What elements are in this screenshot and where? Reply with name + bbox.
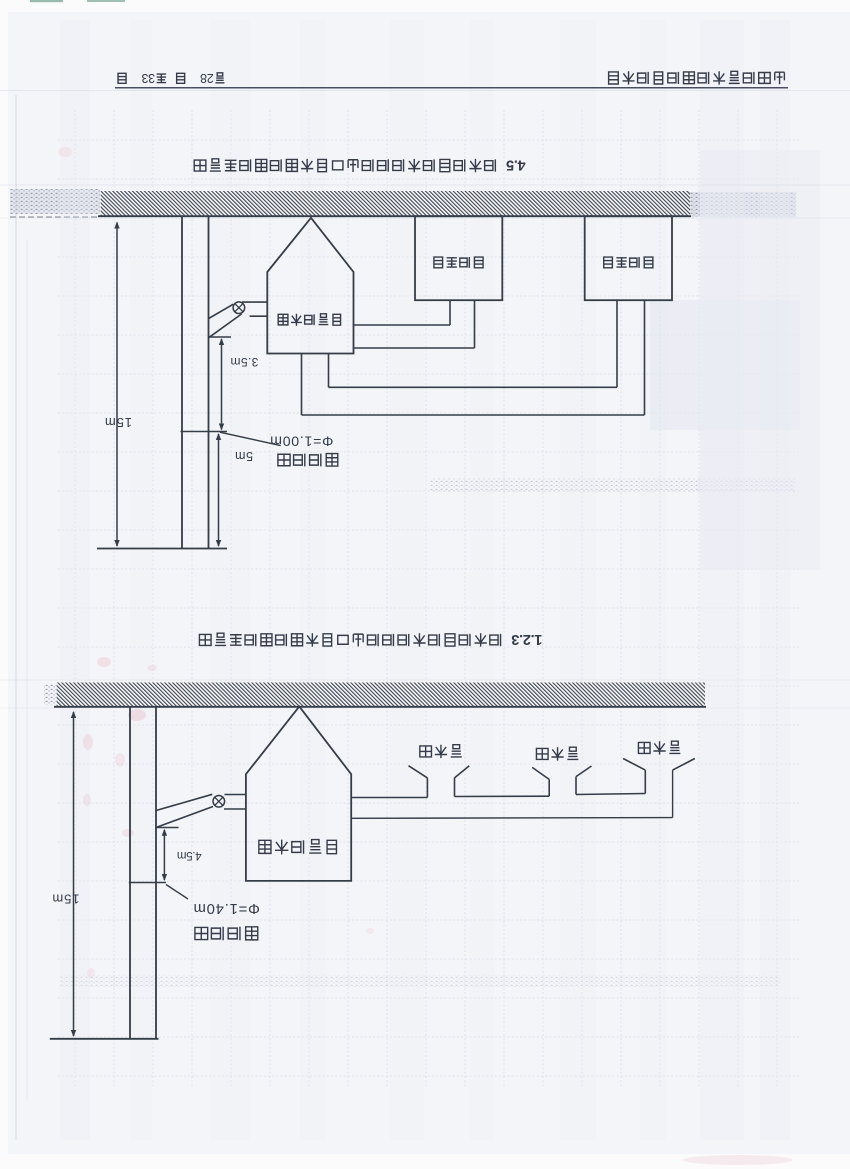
svg-text:33: 33 [141, 71, 155, 85]
svg-text:Φ=1.00m: Φ=1.00m [269, 433, 333, 449]
svg-text:15m: 15m [52, 892, 80, 907]
svg-text:5m: 5m [234, 449, 253, 463]
svg-text:3.5m: 3.5m [230, 355, 258, 369]
svg-text:15m: 15m [104, 415, 132, 430]
svg-text:4.5m: 4.5m [177, 849, 201, 861]
svg-text:1.2.3: 1.2.3 [511, 631, 542, 647]
svg-text:28: 28 [200, 71, 214, 85]
svg-text:Φ=1.40m: Φ=1.40m [193, 900, 260, 916]
svg-text:4.5: 4.5 [506, 156, 525, 172]
